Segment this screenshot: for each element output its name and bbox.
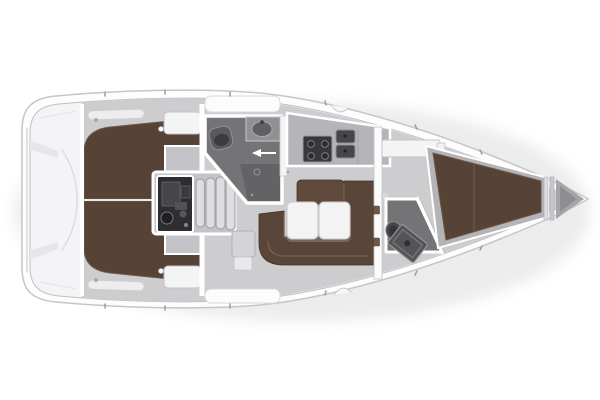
deck-fitting <box>94 118 98 122</box>
door-latch <box>381 193 388 198</box>
yacht-floorplan: Side decks and hull Transom / swim platf… <box>0 0 600 400</box>
deck-fitting <box>94 278 98 282</box>
saloon-table-leaf-left <box>287 202 318 239</box>
sink-icon <box>246 117 281 141</box>
aft-cabin-starboard-wardrobe <box>164 266 201 288</box>
reading-light-icon <box>159 269 164 274</box>
aft-cabin-port-wardrobe <box>164 112 201 134</box>
saloon-bench <box>232 231 255 257</box>
door-hinge <box>374 238 380 246</box>
saloon-step <box>234 257 252 270</box>
saloon-table-leaf-right <box>319 202 350 239</box>
reading-light-icon <box>159 127 164 132</box>
cockpit-seat <box>205 289 280 303</box>
companionway-hatch <box>205 96 280 112</box>
door-hinge <box>374 206 380 214</box>
engine-companionway: Engine compartment Companionway steps <box>153 172 235 234</box>
floorplan-canvas: Side decks and hull Transom / swim platf… <box>0 0 600 400</box>
engine-compartment: Engine compartment <box>157 176 193 232</box>
stove-icon <box>303 136 332 162</box>
